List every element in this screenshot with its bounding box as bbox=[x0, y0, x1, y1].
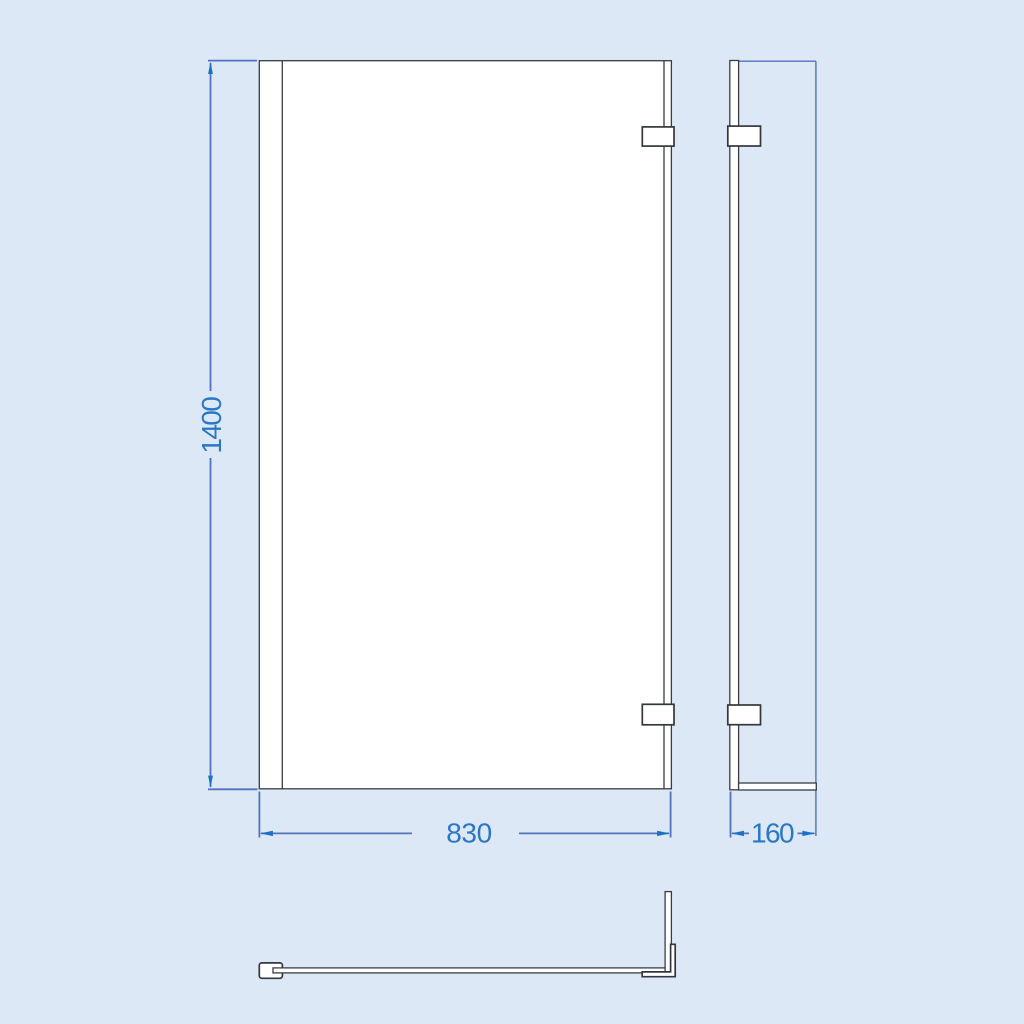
svg-text:160: 160 bbox=[751, 818, 794, 849]
svg-text:830: 830 bbox=[446, 818, 492, 849]
svg-text:1400: 1400 bbox=[196, 397, 227, 454]
